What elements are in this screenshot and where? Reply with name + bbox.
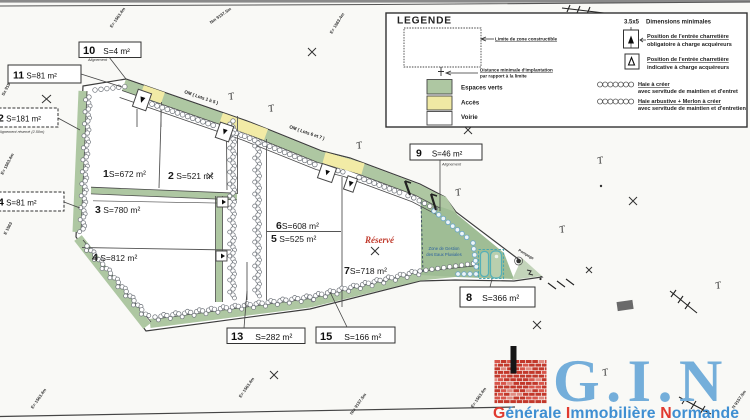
svg-text:Zone de Gestion: Zone de Gestion [429, 246, 461, 251]
svg-text:10S=4 m²: 10S=4 m² [83, 45, 130, 57]
svg-text:indicative à charge acquéreurs: indicative à charge acquéreurs [647, 65, 729, 71]
svg-text:des Eaux Pluviales: des Eaux Pluviales [426, 252, 461, 257]
svg-text:13S=282 m²: 13S=282 m² [231, 331, 293, 343]
svg-text:avec servitude de maintien et: avec servitude de maintien et d'entret [638, 89, 738, 95]
svg-text:Position de l'entrée charretiè: Position de l'entrée charretière [647, 34, 729, 40]
svg-text:1S=672 m²: 1S=672 m² [103, 168, 146, 180]
svg-text:2 S=521 m²: 2 S=521 m² [168, 170, 213, 182]
svg-text:avec servitude de maintien et: avec servitude de maintien et d'entretie… [638, 106, 747, 112]
svg-text:Distance minimale d'implantati: Distance minimale d'implantation [480, 68, 553, 73]
svg-text:Position de l'entrée charretiè: Position de l'entrée charretière [647, 57, 729, 63]
svg-text:15S=166 m²: 15S=166 m² [320, 331, 382, 343]
svg-text:LEGENDE: LEGENDE [397, 16, 452, 27]
svg-text:6S=608 m²: 6S=608 m² [276, 220, 319, 232]
svg-text:2 S=181 m²: 2 S=181 m² [0, 113, 41, 125]
svg-text:Haie à créer: Haie à créer [638, 82, 671, 88]
svg-text:4 S=81 m²: 4 S=81 m² [0, 197, 37, 209]
svg-text:Alignement: Alignement [87, 58, 108, 62]
svg-text:Espaces verts: Espaces verts [461, 85, 503, 92]
svg-text:Haie arbustive + Merlon à cré: Haie arbustive + Merlon à créer [638, 99, 722, 105]
svg-text:Voirie: Voirie [461, 114, 478, 121]
svg-text:Limite de zone constructible: Limite de zone constructible [495, 37, 557, 42]
svg-text:Réservé: Réservé [364, 235, 395, 245]
svg-text:par rapport à la limite: par rapport à la limite [480, 74, 527, 79]
svg-text:Alignement: Alignement [441, 163, 462, 167]
svg-text:7S=718 m²: 7S=718 m² [344, 265, 387, 277]
svg-text:4 S=812 m²: 4 S=812 m² [92, 252, 137, 264]
svg-text:11 S=81 m²: 11 S=81 m² [13, 70, 57, 82]
svg-text:Dimensions minimales: Dimensions minimales [646, 20, 712, 26]
svg-text:obligatoire à charge acquéreur: obligatoire à charge acquéreurs [647, 42, 732, 48]
svg-text:Accès: Accès [461, 100, 480, 107]
svg-text:3 S=780 m²: 3 S=780 m² [95, 204, 140, 216]
svg-text:5 S=525 m²: 5 S=525 m² [271, 233, 316, 245]
svg-text:Générale Immobilière Normande: Générale Immobilière Normande [493, 405, 739, 420]
svg-text:alignement réservé (2.50m): alignement réservé (2.50m) [0, 130, 45, 134]
svg-text:3.5x5: 3.5x5 [624, 20, 640, 26]
